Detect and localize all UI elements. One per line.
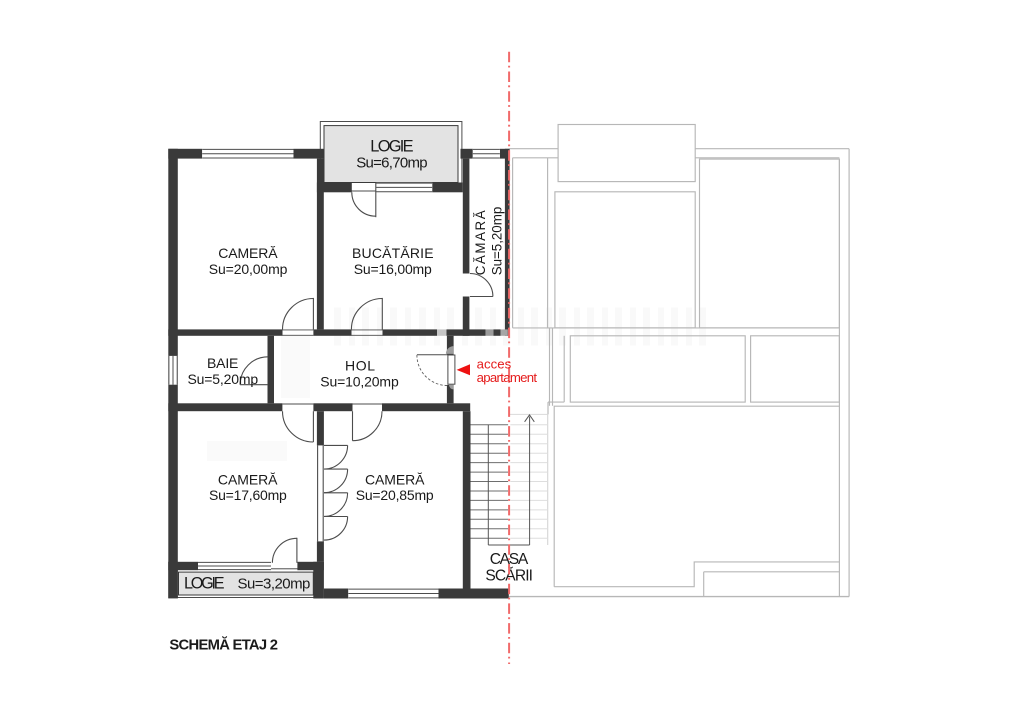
svg-text:Su=10,20mp: Su=10,20mp	[320, 373, 399, 389]
svg-text:CAMERĂ: CAMERĂ	[218, 471, 278, 487]
svg-text:Su=20,00mp: Su=20,00mp	[209, 261, 288, 277]
svg-text:apartament: apartament	[477, 370, 538, 385]
svg-text:Su=20,85mp: Su=20,85mp	[356, 487, 434, 503]
svg-text:CAMERĂ: CAMERĂ	[218, 245, 278, 261]
svg-text:BAIE: BAIE	[207, 355, 238, 371]
svg-text:LOGIE: LOGIE	[370, 137, 413, 155]
svg-text:Su=5,20mp: Su=5,20mp	[187, 371, 258, 387]
svg-text:LOGIE: LOGIE	[184, 575, 225, 593]
svg-text:Su=16,00mp: Su=16,00mp	[354, 261, 432, 277]
svg-text:HOL: HOL	[345, 357, 375, 373]
svg-text:Su=17,60mp: Su=17,60mp	[209, 487, 287, 503]
svg-text:BUCĂTĂRIE: BUCĂTĂRIE	[352, 245, 434, 261]
svg-text:SCHEMĂ ETAJ 2: SCHEMĂ ETAJ 2	[169, 637, 278, 654]
svg-text:Su=6,70mp: Su=6,70mp	[356, 155, 427, 172]
svg-text:CAMERĂ: CAMERĂ	[365, 471, 425, 487]
svg-text:Su=3,20mp: Su=3,20mp	[238, 576, 311, 593]
svg-text:Su=5,20mp: Su=5,20mp	[490, 207, 505, 276]
